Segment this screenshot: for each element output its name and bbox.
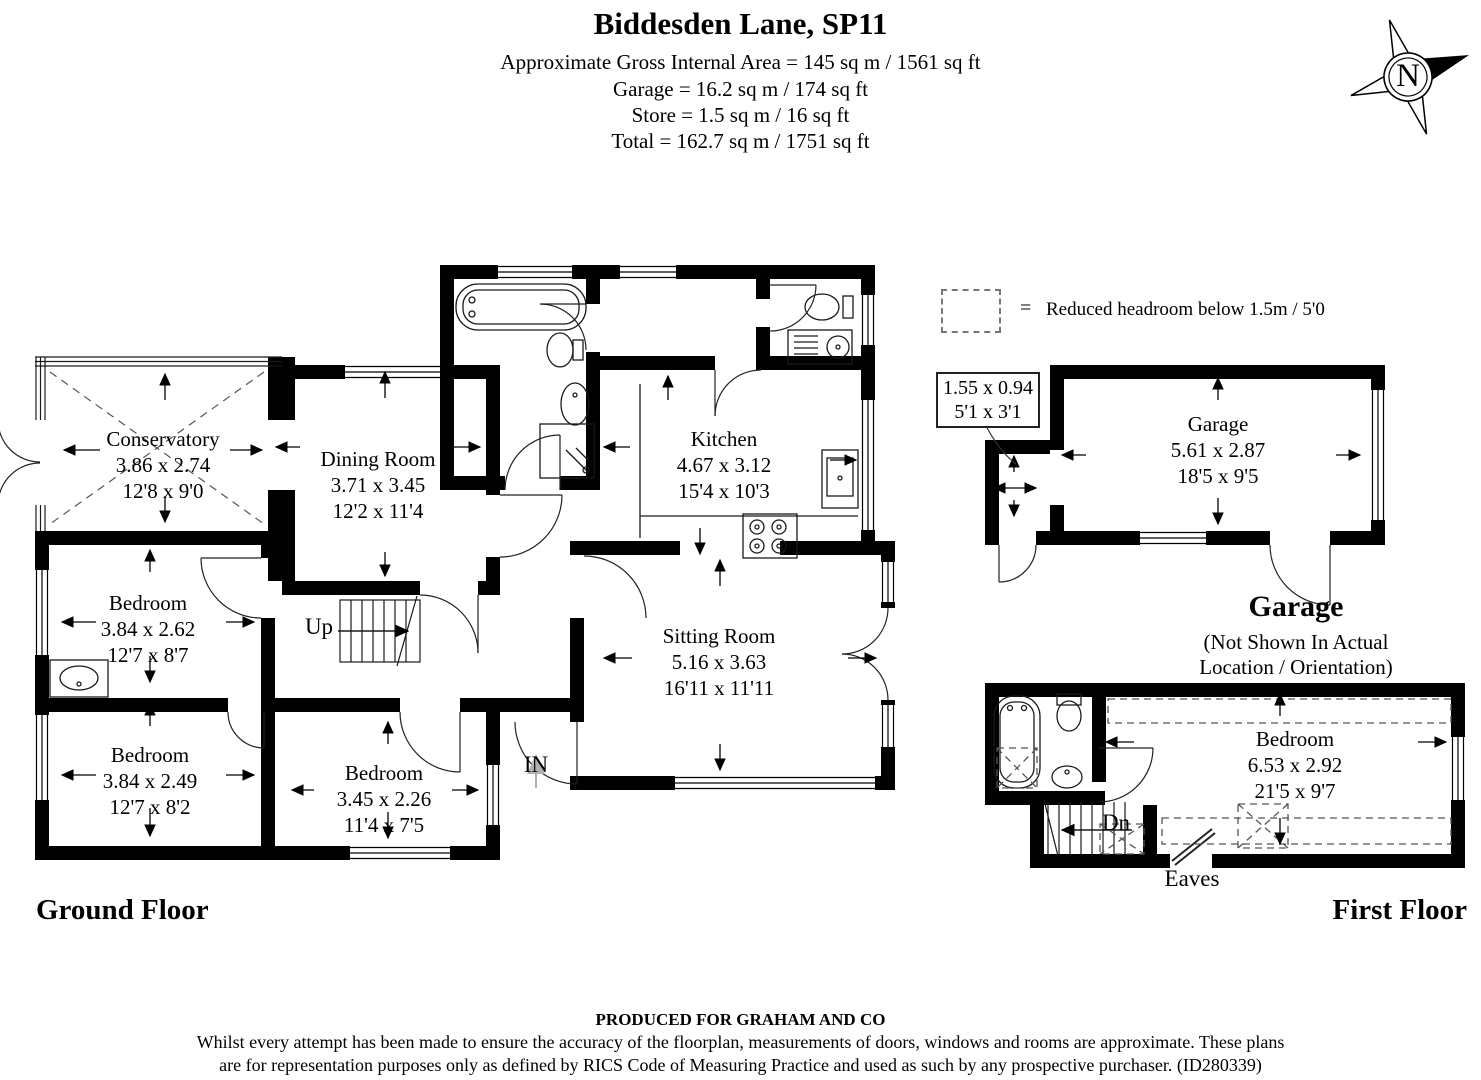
first-floor-title: First Floor xyxy=(1333,894,1467,927)
first-floor-walls xyxy=(985,683,1465,868)
store-area: Store = 1.5 sq m / 16 sq ft xyxy=(0,103,1481,128)
footer-disclaimer-line2: are for representation purposes only as … xyxy=(0,1055,1481,1076)
reduced-headroom-areas xyxy=(997,699,1451,854)
legend-equals: = xyxy=(1020,297,1031,320)
compass-north-label: N xyxy=(1396,58,1420,95)
room-label-sitting: Sitting Room 5.16 x 3.63 16'11 x 11'11 xyxy=(663,623,776,701)
room-label-dining: Dining Room 3.71 x 3.45 12'2 x 11'4 xyxy=(321,446,436,524)
kitchen-sink-icon xyxy=(822,450,858,508)
vanity-basin-icon xyxy=(50,660,108,697)
ff-basin-icon xyxy=(1052,766,1082,788)
legend-text: Reduced headroom below 1.5m / 5'0 xyxy=(1046,299,1325,321)
reduced-headroom-swatch xyxy=(941,289,1001,333)
dn-label: Dn xyxy=(1102,810,1130,836)
room-label-garage: Garage 5.61 x 2.87 18'5 x 9'5 xyxy=(1171,411,1266,489)
store-dimension-box: 1.55 x 0.94 5'1 x 3'1 xyxy=(936,372,1040,428)
total-area: Total = 162.7 sq m / 1751 sq ft xyxy=(0,129,1481,154)
shower-icon xyxy=(540,424,594,478)
room-label-conservatory: Conservatory 3.86 x 2.74 12'8 x 9'0 xyxy=(106,426,219,504)
room-label-bedroom3: Bedroom 3.45 x 2.26 11'4 x 7'5 xyxy=(337,760,432,838)
garage-heading: Garage xyxy=(1249,590,1344,624)
toilet-icon xyxy=(547,333,583,367)
stairs-up xyxy=(338,596,420,666)
room-label-kitchen: Kitchen 4.67 x 3.12 15'4 x 10'3 xyxy=(677,426,772,504)
room-label-ff-bedroom: Bedroom 6.53 x 2.92 21'5 x 9'7 xyxy=(1248,726,1343,804)
basin-icon xyxy=(561,383,589,425)
floorplan-page: Biddesden Lane, SP11 Approximate Gross I… xyxy=(0,0,1481,1080)
footer-produced-for: PRODUCED FOR GRAHAM AND CO xyxy=(0,1010,1481,1030)
eaves-label: Eaves xyxy=(1165,866,1220,892)
garage-note-line2: Location / Orientation) xyxy=(1199,655,1393,680)
floor-plan-canvas xyxy=(0,0,1481,1080)
in-label: IN xyxy=(524,752,548,778)
bath-icon xyxy=(456,284,586,330)
page-title: Biddesden Lane, SP11 xyxy=(0,6,1481,42)
gross-internal-area: Approximate Gross Internal Area = 145 sq… xyxy=(0,50,1481,75)
wc-toilet-icon xyxy=(805,294,853,320)
room-label-bedroom2: Bedroom 3.84 x 2.49 12'7 x 8'2 xyxy=(103,742,198,820)
garage-note-line1: (Not Shown In Actual xyxy=(1204,630,1389,655)
up-label: Up xyxy=(305,614,333,640)
footer-disclaimer-line1: Whilst every attempt has been made to en… xyxy=(0,1032,1481,1053)
ground-floor-title: Ground Floor xyxy=(36,894,209,927)
ff-bath-icon xyxy=(994,696,1040,788)
ff-toilet-icon xyxy=(1057,694,1081,731)
garage-area: Garage = 16.2 sq m / 174 sq ft xyxy=(0,77,1481,102)
room-label-bedroom1: Bedroom 3.84 x 2.62 12'7 x 8'7 xyxy=(101,590,196,668)
eaves-door xyxy=(1172,829,1215,865)
